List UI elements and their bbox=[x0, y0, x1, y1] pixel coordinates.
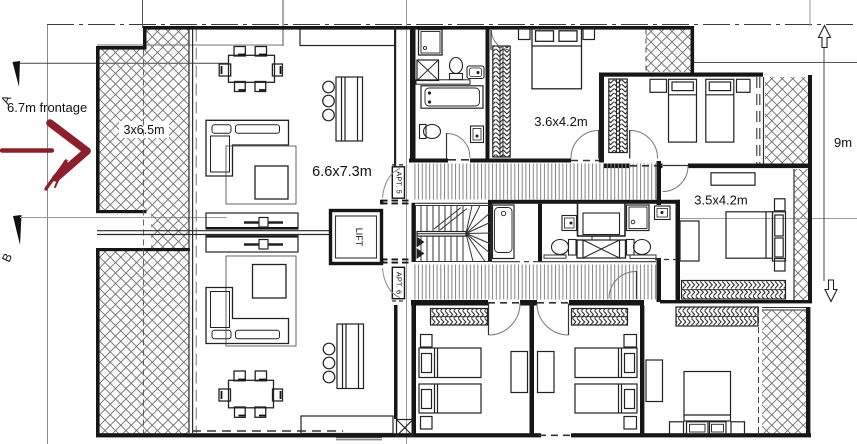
svg-text:3.6x4.2m: 3.6x4.2m bbox=[534, 114, 587, 129]
svg-text:6.7m frontage: 6.7m frontage bbox=[7, 100, 87, 115]
svg-text:3.5x4.2m: 3.5x4.2m bbox=[694, 193, 747, 208]
svg-text:9m: 9m bbox=[834, 135, 852, 150]
svg-text:APT. 5: APT. 5 bbox=[394, 171, 403, 193]
svg-text:6.6x7.3m: 6.6x7.3m bbox=[312, 164, 372, 180]
svg-text:APT. 6: APT. 6 bbox=[394, 272, 403, 294]
svg-text:LIFT: LIFT bbox=[354, 228, 364, 247]
svg-text:3x6.5m: 3x6.5m bbox=[124, 123, 165, 137]
